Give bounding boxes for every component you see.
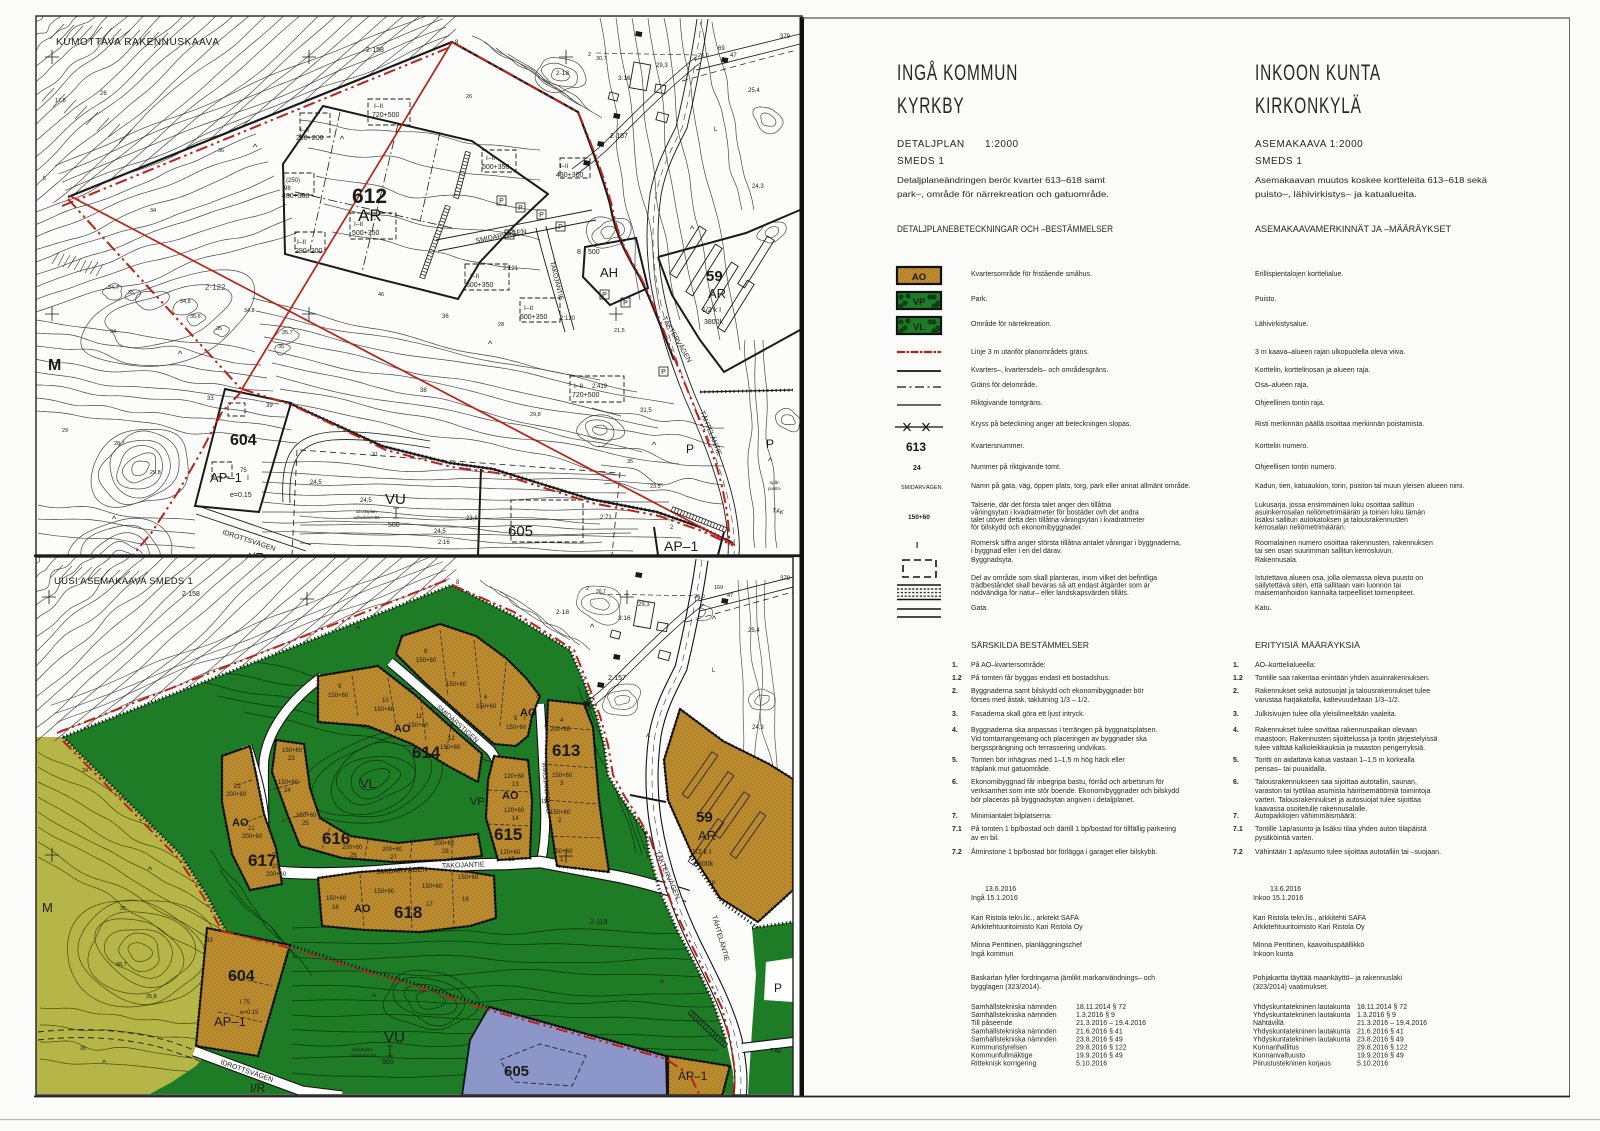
svg-text:idrottsplan: idrottsplan	[352, 1047, 373, 1052]
svg-text:34: 34	[150, 208, 156, 214]
svg-text:6.: 6.	[1233, 779, 1239, 786]
svg-text:DETALJPLANEBETECKNINGAR OCH: DETALJPLANEBETECKNINGAR OCH –BESTÄMMELSE…	[897, 224, 1113, 235]
svg-text:INKOON KUNTA: INKOON KUNTA	[1255, 61, 1381, 85]
svg-text:150+60: 150+60	[282, 748, 303, 754]
svg-text:5.10.2016: 5.10.2016	[1076, 1061, 1107, 1068]
svg-text:18.11.2014 § 72: 18.11.2014 § 72	[1076, 1004, 1126, 1011]
svg-text:21.3.2016 – 19.4.2016: 21.3.2016 – 19.4.2016	[1357, 1020, 1427, 1027]
svg-text:3:16: 3:16	[618, 75, 631, 82]
svg-text:urheilukenttä: urheilukenttä	[350, 1053, 376, 1058]
svg-text:4.: 4.	[1233, 727, 1239, 734]
svg-text:25,4: 25,4	[748, 628, 760, 634]
svg-text:15: 15	[508, 857, 515, 863]
svg-text:2: 2	[588, 52, 591, 58]
svg-text:Asemakaavan muutos koskee k: Asemakaavan muutos koskee kortteleita 61…	[1255, 176, 1488, 185]
svg-text:Minimiantalet bilplatserna:: Minimiantalet bilplatserna:	[971, 813, 1052, 820]
svg-text:AP–1: AP–1	[678, 1069, 708, 1083]
svg-text:25,8: 25,8	[146, 994, 157, 1000]
svg-text:613: 613	[906, 440, 926, 454]
svg-text:150+60: 150+60	[552, 849, 573, 855]
svg-text:P: P	[766, 437, 774, 451]
svg-text:7.1: 7.1	[1233, 826, 1243, 833]
svg-text:träplank mut gatuområde.: träplank mut gatuområde.	[971, 765, 1051, 773]
svg-text:Rakennusala.: Rakennusala.	[1255, 557, 1298, 564]
svg-text:Erillispientalojen korttelialu: Erillispientalojen korttelialue.	[1255, 271, 1343, 278]
svg-text:talet utöver detta den tillåtn: talet utöver detta den tillåtna våningsy…	[971, 516, 1145, 524]
svg-text:våningsytan i kvadratmeter för: våningsytan i kvadratmeter för bostäder …	[971, 509, 1139, 517]
svg-text:26: 26	[350, 853, 357, 859]
svg-text:34,8: 34,8	[180, 299, 191, 305]
svg-text:Detaljplaneändringen berör k: Detaljplaneändringen berör kvarter 613–6…	[897, 176, 1106, 185]
svg-text:25: 25	[302, 821, 309, 827]
svg-text:säilytettävä siten, että salli: säilytettävä siten, että sallitaan vain …	[1255, 583, 1401, 590]
svg-text:29,3: 29,3	[638, 602, 650, 608]
svg-text:8: 8	[577, 249, 581, 256]
svg-text:2·119: 2·119	[590, 919, 607, 926]
svg-text:Ohjeellisen tontin numero.: Ohjeellisen tontin numero.	[1255, 464, 1336, 471]
svg-text:3800k: 3800k	[694, 861, 714, 868]
svg-text:I: I	[247, 475, 249, 482]
svg-text:2:71: 2:71	[600, 515, 612, 521]
svg-text:Risti merkinnän päällä osoitta: Risti merkinnän päällä osoittaa merkinnä…	[1255, 421, 1424, 428]
svg-text:1.: 1.	[952, 662, 958, 669]
svg-text:P: P	[686, 442, 694, 456]
svg-text:7.1: 7.1	[952, 826, 962, 833]
svg-text:120+60: 120+60	[504, 808, 525, 814]
svg-text:P: P	[499, 198, 504, 205]
svg-text:290+200: 290+200	[295, 248, 323, 255]
svg-text:4.: 4.	[952, 727, 958, 734]
svg-text:150+60: 150+60	[278, 780, 299, 786]
svg-text:varaston tai työtilaa asumista: varaston tai työtilaa asumista häiritsem…	[1255, 788, 1431, 795]
svg-text:24,5: 24,5	[360, 498, 372, 504]
svg-text:19.9.2016 § 49: 19.9.2016 § 49	[1357, 1053, 1404, 1060]
svg-text:AO: AO	[912, 272, 926, 283]
svg-text:Gata.: Gata.	[971, 605, 988, 612]
svg-text:1:2000: 1:2000	[985, 139, 1019, 150]
svg-text:varten. Talousrakennukset ja a: varten. Talousrakennukset ja autosuojat …	[1255, 797, 1421, 804]
svg-text:25,4: 25,4	[748, 88, 760, 94]
svg-text:200+60: 200+60	[550, 727, 571, 733]
svg-text:Inkoo 15.1.2016: Inkoo 15.1.2016	[1253, 895, 1303, 902]
svg-text:Byggnaderna ska anpassas i ter: Byggnaderna ska anpassas i terrängen på …	[971, 726, 1157, 734]
svg-text:24,5: 24,5	[310, 480, 322, 486]
svg-text:ERITYISIÄ MÄÄRÄYKSIÄ: ERITYISIÄ MÄÄRÄYKSIÄ	[1255, 640, 1360, 650]
svg-text:spår-: spår-	[770, 479, 781, 485]
svg-text:i byggnad eller i en del därav: i byggnad eller i en del därav.	[971, 548, 1062, 555]
svg-text:AH: AH	[600, 265, 618, 280]
svg-text:500+350: 500+350	[482, 164, 510, 171]
svg-text:Talousrakennukseen saa sijoitt: Talousrakennukseen saa sijoittaa autotal…	[1255, 779, 1417, 786]
svg-text:1/2 k I: 1/2 k I	[702, 307, 721, 314]
svg-text:10: 10	[382, 698, 389, 704]
svg-text:39: 39	[266, 403, 273, 409]
svg-text:2:419: 2:419	[592, 384, 608, 390]
svg-text:ASEMAKAAVA 1:2000: ASEMAKAAVA 1:2000	[1255, 139, 1363, 150]
svg-text:1.2: 1.2	[1233, 675, 1243, 682]
svg-text:6.: 6.	[952, 779, 958, 786]
svg-text:Del av område som skall plante: Del av område som skall planteras, inom …	[971, 574, 1157, 582]
svg-text:150+60: 150+60	[374, 707, 395, 713]
svg-text:verksamhet som inte stör boend: verksamhet som inte stör boende. Ekonomi…	[971, 788, 1179, 795]
svg-text:för bilskydd och ekonomibyggna: för bilskydd och ekonomibyggnader.	[971, 525, 1083, 532]
svg-text:TAKOJANTIE: TAKOJANTIE	[442, 862, 485, 870]
svg-text:150+60: 150+60	[416, 658, 437, 664]
svg-text:150+60: 150+60	[446, 682, 467, 688]
svg-text:P: P	[661, 369, 666, 376]
svg-text:I–II: I–II	[486, 155, 495, 162]
svg-text:614: 614	[412, 743, 441, 762]
svg-text:20: 20	[272, 864, 279, 870]
svg-text:I–II: I–II	[470, 273, 479, 280]
svg-text:46: 46	[378, 292, 384, 298]
svg-text:Kryss på beteckning anger att: Kryss på beteckning anger att beteckning…	[971, 420, 1131, 428]
svg-text:AO–korttelialueella:: AO–korttelialueella:	[1255, 662, 1316, 669]
svg-text:27: 27	[390, 855, 397, 861]
svg-text:maisemanhoidon kannalta tarpee: maisemanhoidon kannalta tarpeelliset toi…	[1255, 590, 1415, 597]
svg-text:24: 24	[284, 788, 291, 794]
svg-text:31: 31	[372, 452, 378, 458]
svg-text:Korttelin, korttelinosan ja al: Korttelin, korttelinosan ja alueen raja.	[1255, 367, 1370, 374]
svg-text:Kari Ristola tekn.lic., arkite: Kari Ristola tekn.lic., arkitekt SAFA	[971, 915, 1079, 922]
svg-text:Inkoon kunta: Inkoon kunta	[1253, 951, 1293, 958]
svg-text:150+60: 150+60	[458, 875, 479, 881]
svg-text:Rakennukset sekä autosuojat ja: Rakennukset sekä autosuojat ja talousrak…	[1255, 688, 1430, 695]
svg-text:Samhällstekniska nämnden: Samhällstekniska nämnden	[971, 1028, 1057, 1035]
svg-text:AO: AO	[354, 903, 371, 915]
svg-text:Linje 3 m utanför planområdets: Linje 3 m utanför planområdets gräns.	[971, 348, 1089, 356]
svg-text:21,5: 21,5	[614, 328, 625, 334]
svg-text:169: 169	[714, 585, 723, 591]
svg-text:29.8.2016 § 122: 29.8.2016 § 122	[1076, 1045, 1127, 1052]
svg-text:26: 26	[100, 91, 107, 97]
svg-text:ASEMAKAAVAMERKINNÄT JA –MÄÄR: ASEMAKAAVAMERKINNÄT JA –MÄÄRÄYKSET	[1255, 224, 1451, 235]
svg-text:379: 379	[780, 34, 791, 40]
svg-text:2·157: 2·157	[608, 675, 626, 682]
svg-text:DETALJPLAN: DETALJPLAN	[897, 139, 965, 150]
svg-text:604: 604	[230, 432, 257, 449]
svg-text:tulee välttää kallioleikkauksi: tulee välttää kallioleikkauksia ja maast…	[1255, 745, 1425, 752]
svg-text:23,5: 23,5	[650, 484, 661, 490]
svg-text:2.: 2.	[1233, 688, 1239, 695]
svg-text:UUSI ASEMAKAAVA SMEDS 1: UUSI ASEMAKAAVA SMEDS 1	[54, 576, 193, 587]
svg-text:3800k: 3800k	[704, 319, 724, 326]
svg-text:150+60: 150+60	[326, 896, 347, 902]
svg-text:Gräns för delområde.: Gräns för delområde.	[971, 381, 1037, 389]
svg-text:P: P	[623, 300, 628, 307]
svg-text:Korttelin numero.: Korttelin numero.	[1255, 443, 1308, 450]
svg-text:200+60: 200+60	[242, 834, 263, 840]
svg-text:120+60: 120+60	[504, 774, 525, 780]
svg-text:2·18: 2·18	[556, 609, 569, 616]
svg-text:Kari Ristola tekn.lis., arkkit: Kari Ristola tekn.lis., arkkitehti SAFA	[1253, 915, 1367, 922]
svg-text:VU: VU	[384, 1029, 405, 1046]
svg-text:150+60: 150+60	[374, 889, 395, 895]
svg-text:AR: AR	[698, 828, 716, 843]
svg-text:500: 500	[382, 1059, 394, 1066]
svg-text:Fasaderna skall göra ett ljust: Fasaderna skall göra ett ljust intryck.	[971, 711, 1085, 718]
svg-text:615: 615	[494, 825, 522, 844]
svg-text:13: 13	[512, 782, 519, 788]
svg-text:bergssprängning och terrasseri: bergssprängning och terrassering undvika…	[971, 745, 1107, 752]
svg-text:35: 35	[128, 290, 134, 296]
svg-text:INGÅ KOMMUN: INGÅ KOMMUN	[897, 61, 1018, 85]
svg-text:2:16: 2:16	[438, 540, 450, 546]
svg-text:7.2: 7.2	[952, 849, 962, 856]
svg-text:26: 26	[80, 1046, 86, 1052]
svg-text:2·122: 2·122	[205, 283, 226, 292]
svg-text:59: 59	[706, 268, 723, 285]
svg-text:bör placeras på byggnadsytan a: bör placeras på byggnadsytan angiven i d…	[971, 796, 1135, 804]
svg-text:88,7: 88,7	[116, 962, 127, 968]
svg-text:Vid tomtarrangemang och placer: Vid tomtarrangemang och placeringen av b…	[971, 736, 1147, 743]
svg-text:3:16: 3:16	[618, 615, 631, 622]
svg-text:I–II: I–II	[374, 103, 383, 110]
svg-text:park–, område för närrekrea: park–, område för närrekreation och gatu…	[897, 190, 1109, 199]
svg-text:På AO–kvartersområde:: På AO–kvartersområde:	[971, 661, 1046, 669]
svg-text:Nummer på riktgivande tomt.: Nummer på riktgivande tomt.	[971, 463, 1061, 471]
svg-text:7.2: 7.2	[1233, 849, 1243, 856]
svg-text:120: 120	[541, 799, 550, 805]
svg-text:förses med åstak, taklutning 1: förses med åstak, taklutning 1/3 – 1/2.	[971, 696, 1089, 704]
svg-text:17: 17	[426, 902, 433, 908]
svg-text:17,8: 17,8	[55, 98, 66, 104]
svg-text:VL: VL	[360, 776, 376, 791]
svg-text:Tontille 1ap/asunto ja lisäksi: Tontille 1ap/asunto ja lisäksi tilaa yhd…	[1255, 826, 1427, 833]
svg-text:3.: 3.	[952, 711, 958, 718]
svg-text:Byggnaderna samt bilskydd och: Byggnaderna samt bilskydd och ekonomibyg…	[971, 688, 1144, 695]
svg-text:2: 2	[586, 586, 589, 592]
svg-text:29,8: 29,8	[530, 412, 541, 418]
svg-text:35,7: 35,7	[282, 330, 293, 336]
svg-text:idrottsplan: idrottsplan	[356, 509, 377, 514]
svg-text:75: 75	[240, 468, 247, 474]
svg-text:150+60: 150+60	[552, 773, 573, 779]
svg-text:23.8.2016 § 49: 23.8.2016 § 49	[1357, 1036, 1404, 1043]
svg-text:13.6.2016: 13.6.2016	[1270, 886, 1301, 893]
svg-text:5.10.2016: 5.10.2016	[1357, 1061, 1388, 1068]
svg-text:maastoon. Rakennusten sijoitte: maastoon. Rakennusten sijoittelussa ja t…	[1255, 736, 1438, 743]
svg-text:Åtminstone 1 bp/bostad bör för: Åtminstone 1 bp/bostad bör förlägga i ga…	[971, 847, 1157, 856]
svg-text:Piirustustekninen korjaus: Piirustustekninen korjaus	[1253, 1061, 1331, 1068]
svg-text:Baskartan fyller fordringarna: Baskartan fyller fordringarna jämlikt ma…	[971, 975, 1155, 982]
svg-text:28: 28	[442, 849, 449, 855]
svg-text:69: 69	[718, 46, 725, 52]
svg-text:24: 24	[913, 465, 921, 472]
svg-text:Kunnanhallitus: Kunnanhallitus	[1253, 1045, 1299, 1052]
svg-text:29,8: 29,8	[150, 470, 161, 476]
svg-text:P: P	[518, 205, 523, 212]
svg-text:26,0: 26,0	[698, 53, 709, 59]
svg-text:I–II: I–II	[524, 305, 533, 312]
svg-text:Katu.: Katu.	[1255, 605, 1271, 612]
svg-text:23,6: 23,6	[466, 516, 478, 522]
svg-text:36: 36	[442, 314, 449, 320]
svg-text:1.2: 1.2	[952, 675, 962, 682]
svg-text:21: 21	[248, 826, 255, 832]
svg-text:VP: VP	[470, 796, 485, 808]
svg-text:SMEDS 1: SMEDS 1	[1255, 156, 1302, 167]
svg-text:1.3.2016 § 9: 1.3.2016 § 9	[1076, 1012, 1115, 1019]
svg-text:Tomten bör inhägnas med 1–1,5: Tomten bör inhägnas med 1–1,5 m hög häck…	[971, 757, 1125, 764]
svg-text:1.: 1.	[1233, 662, 1239, 669]
svg-text:Kommunfullmäktige: Kommunfullmäktige	[971, 1053, 1033, 1060]
svg-text:Kvartersnummer.: Kvartersnummer.	[971, 443, 1024, 450]
svg-text:Kunnanvaltuusto: Kunnanvaltuusto	[1253, 1053, 1305, 1060]
svg-text:200+60: 200+60	[382, 847, 403, 853]
svg-text:puisto-: puisto-	[768, 486, 782, 491]
svg-text:200+60: 200+60	[266, 872, 287, 878]
svg-text:SMEDS 1: SMEDS 1	[897, 156, 944, 167]
svg-text:35: 35	[627, 459, 633, 465]
svg-text:bygglagen (323/2014).: bygglagen (323/2014).	[971, 984, 1041, 991]
svg-text:Riktgivande tomtgräns.: Riktgivande tomtgräns.	[971, 400, 1043, 407]
svg-text:(250): (250)	[286, 178, 300, 184]
svg-text:Minna Penttinen, planläggnings: Minna Penttinen, planläggningschef	[971, 942, 1082, 949]
svg-text:VP: VP	[913, 297, 926, 308]
svg-text:Lukusarja, jossa ensimmäinen l: Lukusarja, jossa ensimmäinen luku osoitt…	[1255, 502, 1414, 509]
svg-text:5.: 5.	[952, 757, 958, 764]
svg-text:Pohjakartta täyttää maankäyttö: Pohjakartta täyttää maankäyttö– ja raken…	[1253, 975, 1402, 982]
svg-text:33: 33	[206, 938, 213, 944]
svg-text:23.8.2016 § 49: 23.8.2016 § 49	[1076, 1036, 1123, 1043]
svg-text:21.6.2016 § 41: 21.6.2016 § 41	[1357, 1028, 1404, 1035]
svg-text:150+60: 150+60	[550, 810, 571, 816]
svg-text:SMIDARVÄGEN: SMIDARVÄGEN	[901, 484, 942, 491]
svg-text:Roomalainen numero osoittaa ra: Roomalainen numero osoittaa rakennusten,…	[1255, 540, 1433, 547]
svg-text:11: 11	[416, 714, 423, 720]
svg-text:Ingå 15.1.2016: Ingå 15.1.2016	[971, 894, 1018, 902]
svg-text:22: 22	[234, 784, 241, 790]
svg-text:2:120: 2:120	[560, 316, 576, 322]
svg-text:120+60: 120+60	[500, 850, 521, 856]
svg-text:430+300: 430+300	[282, 193, 310, 200]
svg-text:Ekonomibyggnad får inbegripa b: Ekonomibyggnad får inbegripa bastu, förr…	[971, 778, 1165, 786]
svg-text:150+60: 150+60	[476, 704, 497, 710]
svg-text:604: 604	[228, 968, 255, 985]
svg-text:Yhdyskuntatekninen lautakunta: Yhdyskuntatekninen lautakunta	[1253, 1036, 1350, 1043]
svg-text:24,3: 24,3	[752, 725, 764, 731]
svg-text:23: 23	[288, 756, 295, 762]
svg-text:2:121: 2:121	[503, 266, 519, 272]
svg-text:150+60: 150+60	[422, 884, 443, 890]
svg-text:AP–1: AP–1	[210, 470, 242, 485]
svg-text:618: 618	[394, 903, 422, 922]
svg-text:I 75: I 75	[240, 1000, 251, 1006]
svg-text:150+60: 150+60	[408, 723, 429, 729]
svg-text:Arkkitehtuuritoimisto Kari Ris: Arkkitehtuuritoimisto Kari Ristola Oy	[1253, 924, 1365, 931]
svg-text:720+500: 720+500	[372, 112, 400, 119]
svg-text:19.9.2016 § 49: 19.9.2016 § 49	[1076, 1053, 1123, 1060]
svg-text:1.3.2016 § 9: 1.3.2016 § 9	[1357, 1012, 1396, 1019]
svg-text:(323/2014) vaatimukset.: (323/2014) vaatimukset.	[1253, 984, 1328, 991]
svg-text:Julkisivujen tulee olla yleisi: Julkisivujen tulee olla yleisilmeeltään …	[1255, 711, 1397, 718]
svg-text:3.: 3.	[1233, 711, 1239, 718]
svg-text:Samhällstekniska nämnden: Samhällstekniska nämnden	[971, 1004, 1057, 1011]
svg-text:605: 605	[504, 1063, 529, 1080]
svg-text:Ritteknisk korrigering: Ritteknisk korrigering	[971, 1061, 1036, 1068]
svg-text:På tomten får byggas endast et: På tomten får byggas endast ett bostadsh…	[971, 674, 1110, 682]
svg-text:pysäköintiä varten.: pysäköintiä varten.	[1255, 835, 1313, 842]
svg-text:Talserie, där det första talet: Talserie, där det första talet anger den…	[971, 501, 1111, 509]
svg-text:36: 36	[218, 148, 224, 154]
svg-text:Till påseende: Till påseende	[971, 1019, 1012, 1027]
svg-text:Vähintään 1 ap/asunto tulee si: Vähintään 1 ap/asunto tulee sijoittaa au…	[1255, 849, 1441, 856]
svg-text:AO: AO	[520, 707, 537, 719]
svg-text:35: 35	[120, 906, 126, 912]
svg-text:Kvartersområde för fristående: Kvartersområde för fristående småhus.	[971, 270, 1092, 278]
svg-text:kaavassa osoitetulle rakennusa: kaavassa osoitetulle rakennusalalle.	[1255, 806, 1367, 813]
svg-text:På tomten 1 bp/bostad och därt: På tomten 1 bp/bostad och därtill 1 bp/b…	[971, 825, 1176, 833]
svg-text:200+60: 200+60	[342, 845, 363, 851]
svg-text:I/R: I/R	[250, 1081, 266, 1095]
svg-text:AP–1: AP–1	[664, 538, 698, 554]
svg-text:150+60: 150+60	[296, 813, 317, 819]
svg-text:Nähtävillä: Nähtävillä	[1253, 1020, 1284, 1027]
svg-text:30,7: 30,7	[596, 56, 607, 62]
svg-text:28,7: 28,7	[114, 441, 125, 447]
svg-text:500: 500	[588, 249, 600, 256]
svg-text:tai sen osan suurimman sallitu: tai sen osan suurimman sallitun kerroslu…	[1255, 548, 1393, 555]
svg-text:I–II: I–II	[354, 221, 363, 228]
svg-text:31,5: 31,5	[640, 408, 652, 414]
svg-text:3 m kaava–alueen rajan ulkopuo: 3 m kaava–alueen rajan ulkopuolella olev…	[1255, 349, 1405, 356]
svg-text:500: 500	[388, 522, 400, 529]
svg-text:612: 612	[352, 185, 387, 208]
svg-text:2·157: 2·157	[610, 133, 628, 140]
svg-text:34,8: 34,8	[244, 308, 255, 314]
svg-text:21.6.2016 § 41: 21.6.2016 § 41	[1076, 1028, 1123, 1035]
svg-text:KIRKONKYLÄ: KIRKONKYLÄ	[1255, 94, 1362, 118]
svg-text:38: 38	[420, 388, 427, 394]
svg-text:13.6.2016: 13.6.2016	[985, 886, 1016, 893]
svg-text:2·158: 2·158	[366, 47, 384, 54]
svg-text:M: M	[42, 900, 53, 915]
svg-text:150+60: 150+60	[908, 514, 930, 521]
svg-text:Område för närrekreation.: Område för närrekreation.	[971, 320, 1052, 328]
svg-text:2·18: 2·18	[556, 70, 569, 77]
svg-text:47: 47	[730, 53, 737, 59]
svg-text:28: 28	[498, 322, 504, 328]
svg-text:Yhdyskuntatekninen lautakunta: Yhdyskuntatekninen lautakunta	[1253, 1012, 1350, 1019]
svg-text:150+60: 150+60	[440, 745, 461, 751]
svg-text:34,7: 34,7	[108, 285, 119, 291]
svg-text:26,0: 26,0	[694, 594, 705, 600]
svg-text:24,5: 24,5	[434, 529, 446, 535]
svg-text:500+350: 500+350	[520, 314, 548, 321]
svg-text:VL: VL	[913, 322, 925, 333]
svg-text:Yhdyskuntatekninen lautakunta: Yhdyskuntatekninen lautakunta	[1253, 1004, 1350, 1011]
svg-text:trädbeståndet skall bevaras så: trädbeståndet skall bevaras så att endas…	[971, 582, 1151, 590]
svg-text:14: 14	[512, 816, 519, 822]
svg-text:18: 18	[332, 905, 339, 911]
svg-text:I–II: I–II	[574, 383, 583, 390]
svg-text:5: 5	[43, 176, 46, 182]
svg-text:I–II: I–II	[300, 127, 309, 134]
svg-text:290+200: 290+200	[296, 135, 324, 142]
svg-text:430+300: 430+300	[556, 172, 584, 179]
svg-text:varustaa harjakatolla, kaltevu: varustaa harjakatolla, kaltevuudeltaan 1…	[1255, 697, 1400, 704]
svg-text:150+60: 150+60	[506, 725, 527, 731]
svg-text:Minna Penttinen, kaavoituspääl: Minna Penttinen, kaavoituspäällikkö	[1253, 942, 1364, 949]
svg-text:KYRKBY: KYRKBY	[897, 94, 964, 118]
svg-text:P: P	[774, 981, 782, 995]
svg-text:nödvändiga för natur– eller la: nödvändiga för natur– eller landskapsvär…	[971, 589, 1129, 597]
svg-text:2·158: 2·158	[182, 591, 200, 598]
svg-text:12: 12	[448, 736, 455, 742]
svg-text:21.3.2016 – 19.4.2016: 21.3.2016 – 19.4.2016	[1076, 1020, 1146, 1027]
svg-text:SÄRSKILDA BESTÄMMELSER: SÄRSKILDA BESTÄMMELSER	[971, 640, 1089, 650]
